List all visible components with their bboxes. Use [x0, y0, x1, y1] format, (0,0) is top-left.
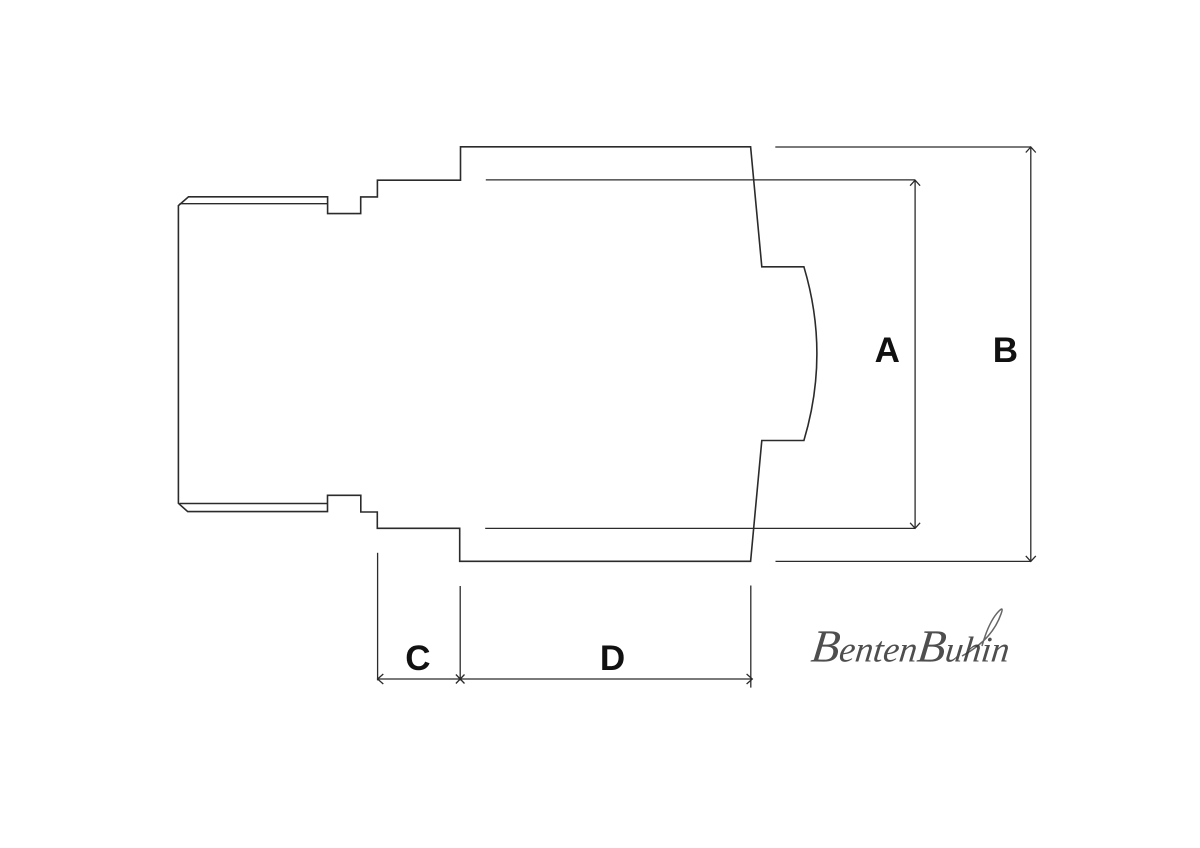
svg-text:A: A: [875, 331, 900, 370]
svg-text:D: D: [600, 639, 625, 678]
svg-text:B: B: [993, 331, 1018, 370]
svg-text:C: C: [405, 639, 430, 678]
